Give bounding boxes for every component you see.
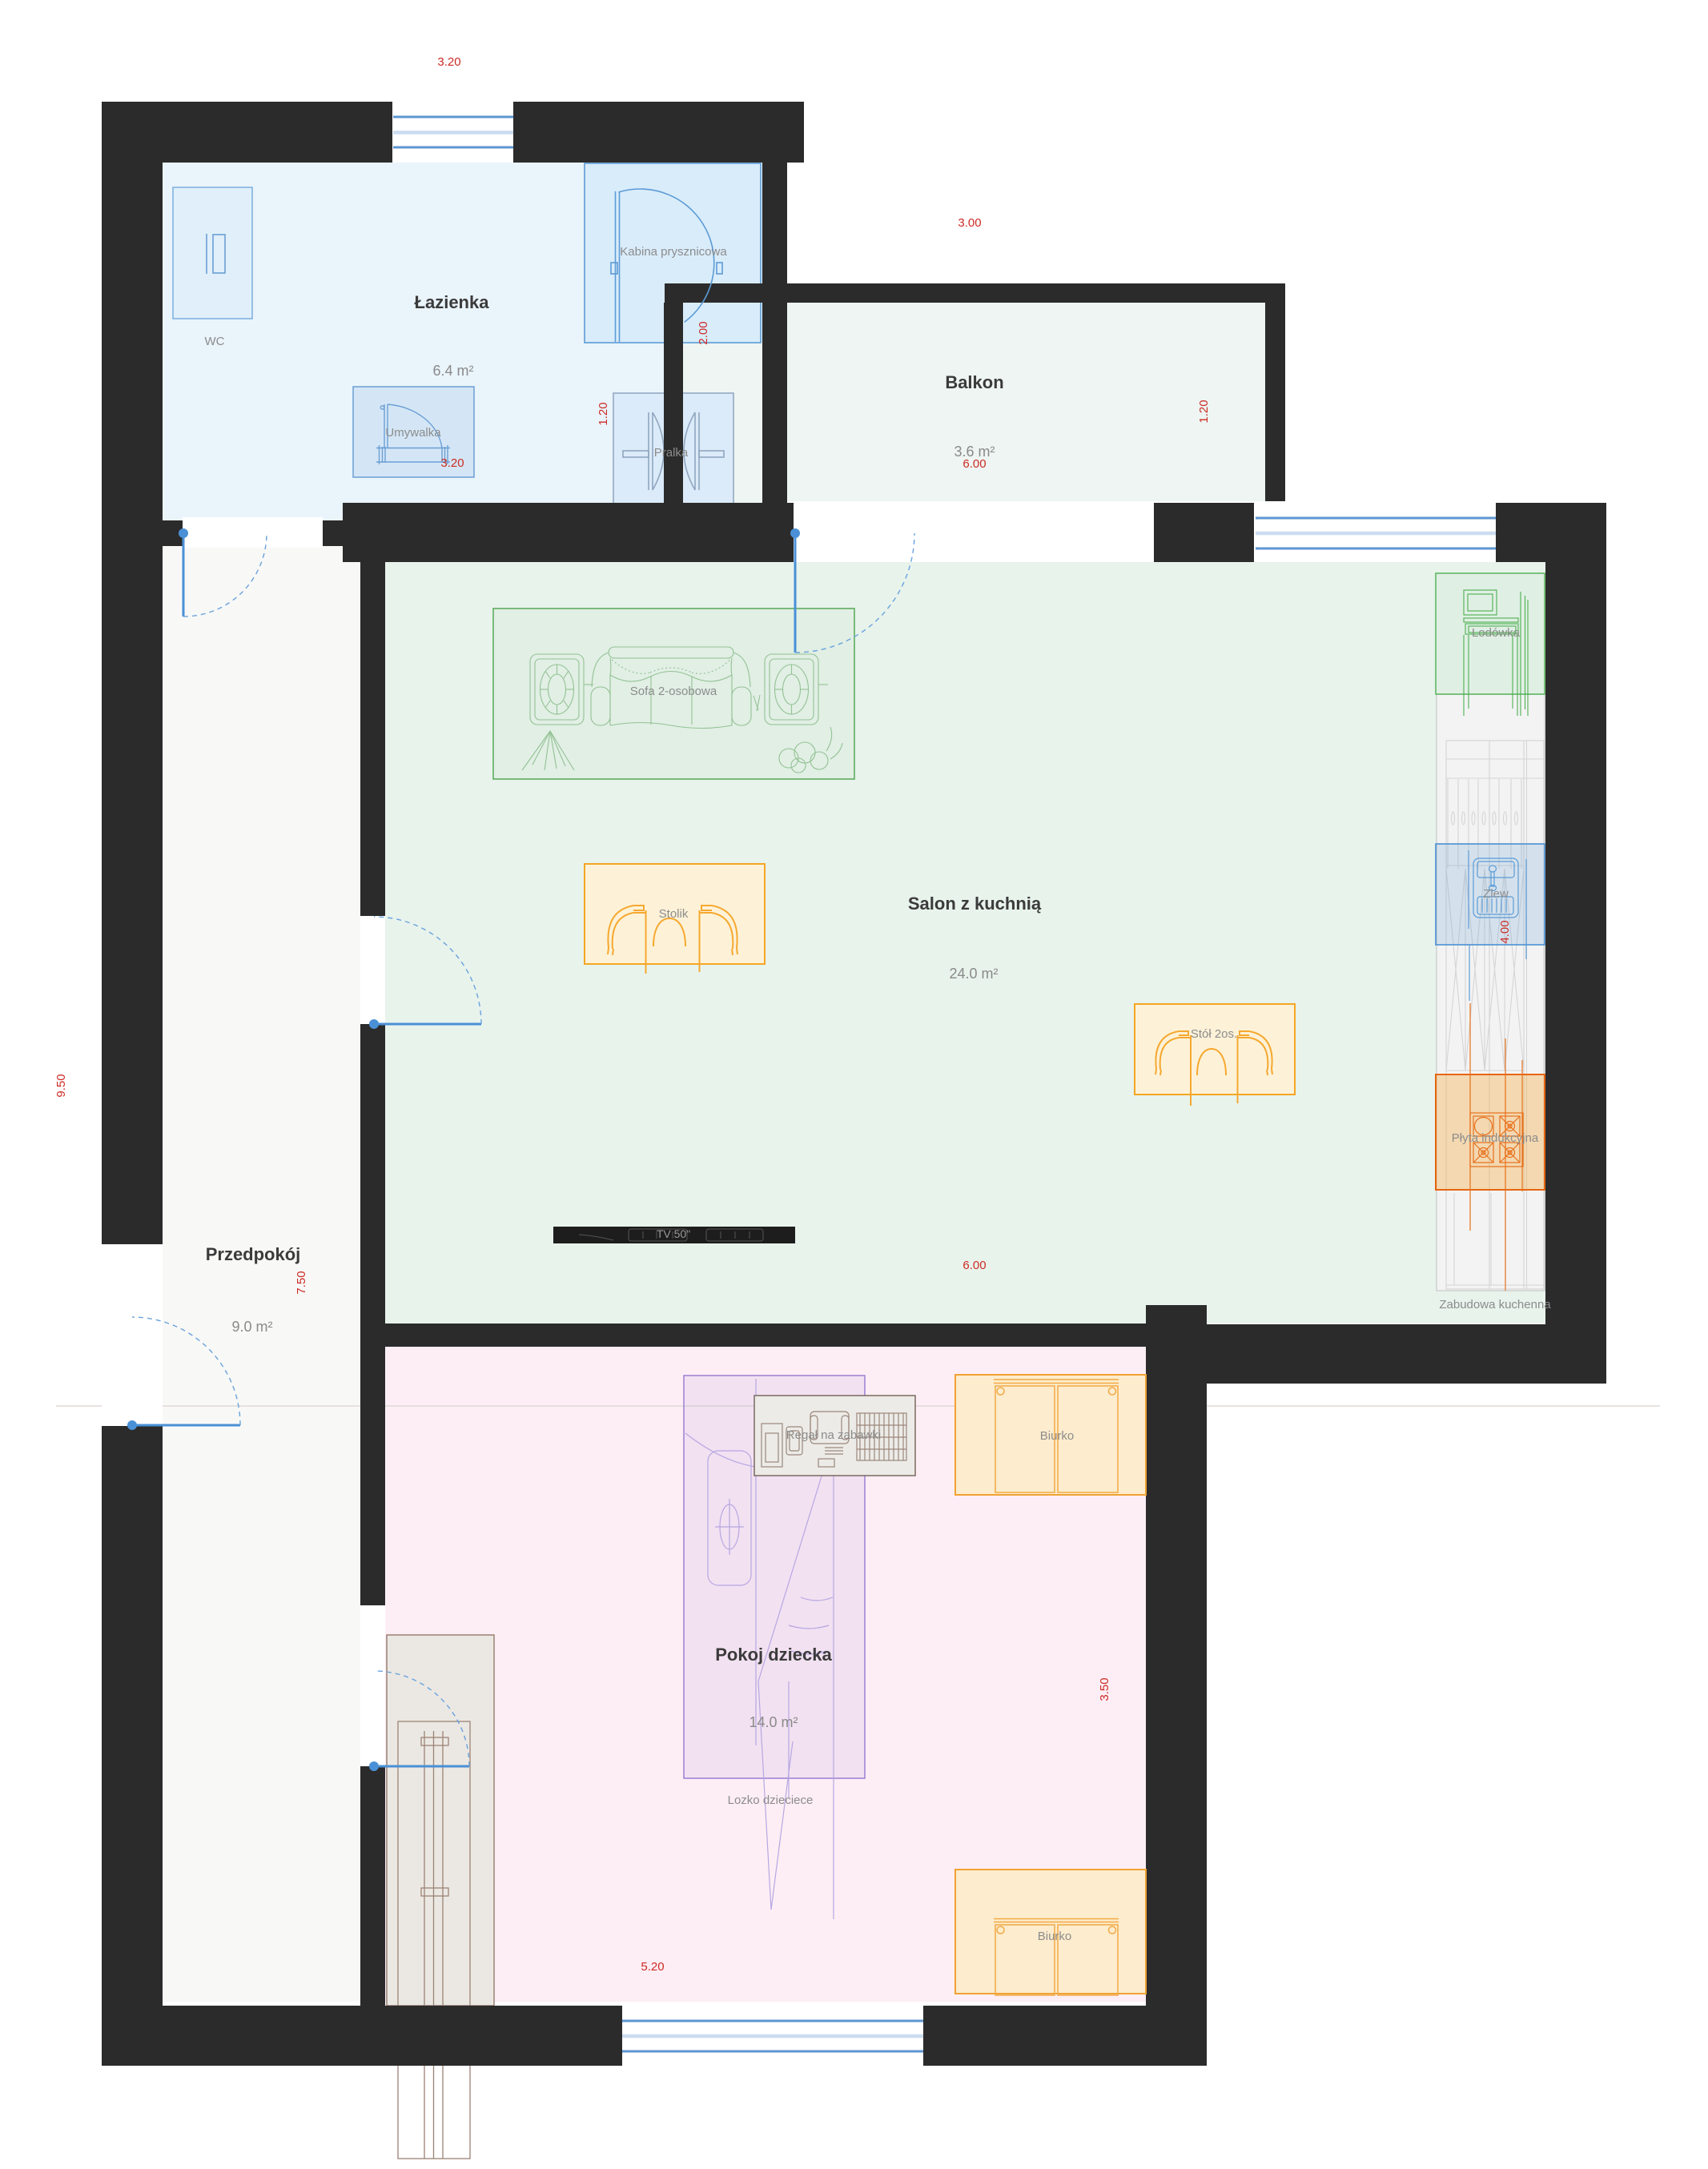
svg-text:Kabina prysznicowa: Kabina prysznicowa bbox=[620, 245, 727, 259]
svg-text:Lodówka: Lodówka bbox=[1472, 626, 1521, 640]
svg-text:1.20: 1.20 bbox=[597, 402, 610, 425]
svg-text:3.50: 3.50 bbox=[1098, 1677, 1111, 1701]
svg-text:Zabudowa kuchenna: Zabudowa kuchenna bbox=[1439, 1298, 1551, 1311]
svg-text:Salon z kuchnią: Salon z kuchnią bbox=[908, 894, 1042, 914]
svg-text:Balkon: Balkon bbox=[945, 372, 1003, 392]
svg-text:3.00: 3.00 bbox=[958, 216, 981, 230]
svg-text:Płyta indukcyjna: Płyta indukcyjna bbox=[1452, 1131, 1539, 1145]
svg-text:24.0 m²: 24.0 m² bbox=[949, 966, 998, 982]
svg-text:Pralka: Pralka bbox=[654, 446, 689, 460]
svg-text:6.00: 6.00 bbox=[963, 457, 986, 471]
svg-text:3.20: 3.20 bbox=[437, 55, 460, 69]
svg-text:9.50: 9.50 bbox=[54, 1074, 68, 1097]
svg-text:Przedpokój: Przedpokój bbox=[206, 1244, 301, 1264]
svg-text:Biurko: Biurko bbox=[1040, 1429, 1075, 1443]
svg-text:Zlew: Zlew bbox=[1483, 887, 1509, 901]
svg-text:Pokoj dziecka: Pokoj dziecka bbox=[715, 1645, 832, 1665]
svg-text:5.20: 5.20 bbox=[641, 1960, 664, 1974]
svg-text:4.00: 4.00 bbox=[1498, 920, 1512, 943]
svg-text:7.50: 7.50 bbox=[295, 1271, 308, 1294]
svg-text:6.00: 6.00 bbox=[963, 1259, 986, 1272]
svg-text:Sofa 2-osobowa: Sofa 2-osobowa bbox=[630, 685, 717, 698]
svg-text:Biurko: Biurko bbox=[1038, 1930, 1072, 1943]
svg-text:Łazienka: Łazienka bbox=[415, 292, 490, 312]
svg-text:WC: WC bbox=[205, 335, 225, 348]
svg-text:Stół 2os.: Stół 2os. bbox=[1191, 1027, 1237, 1041]
svg-text:Stolik: Stolik bbox=[659, 907, 689, 921]
svg-text:2.00: 2.00 bbox=[697, 321, 710, 344]
svg-text:TV 50": TV 50" bbox=[657, 1227, 690, 1240]
svg-text:Umywalka: Umywalka bbox=[385, 426, 441, 440]
svg-text:Regał na zabawki: Regał na zabawki bbox=[786, 1428, 881, 1442]
svg-text:1.20: 1.20 bbox=[1197, 400, 1211, 423]
svg-text:3.20: 3.20 bbox=[440, 456, 464, 470]
svg-text:14.0 m²: 14.0 m² bbox=[749, 1714, 798, 1730]
svg-text:9.0 m²: 9.0 m² bbox=[231, 1319, 272, 1335]
svg-text:Lozko dzieciece: Lozko dzieciece bbox=[728, 1793, 814, 1807]
svg-text:6.4 m²: 6.4 m² bbox=[432, 363, 473, 379]
